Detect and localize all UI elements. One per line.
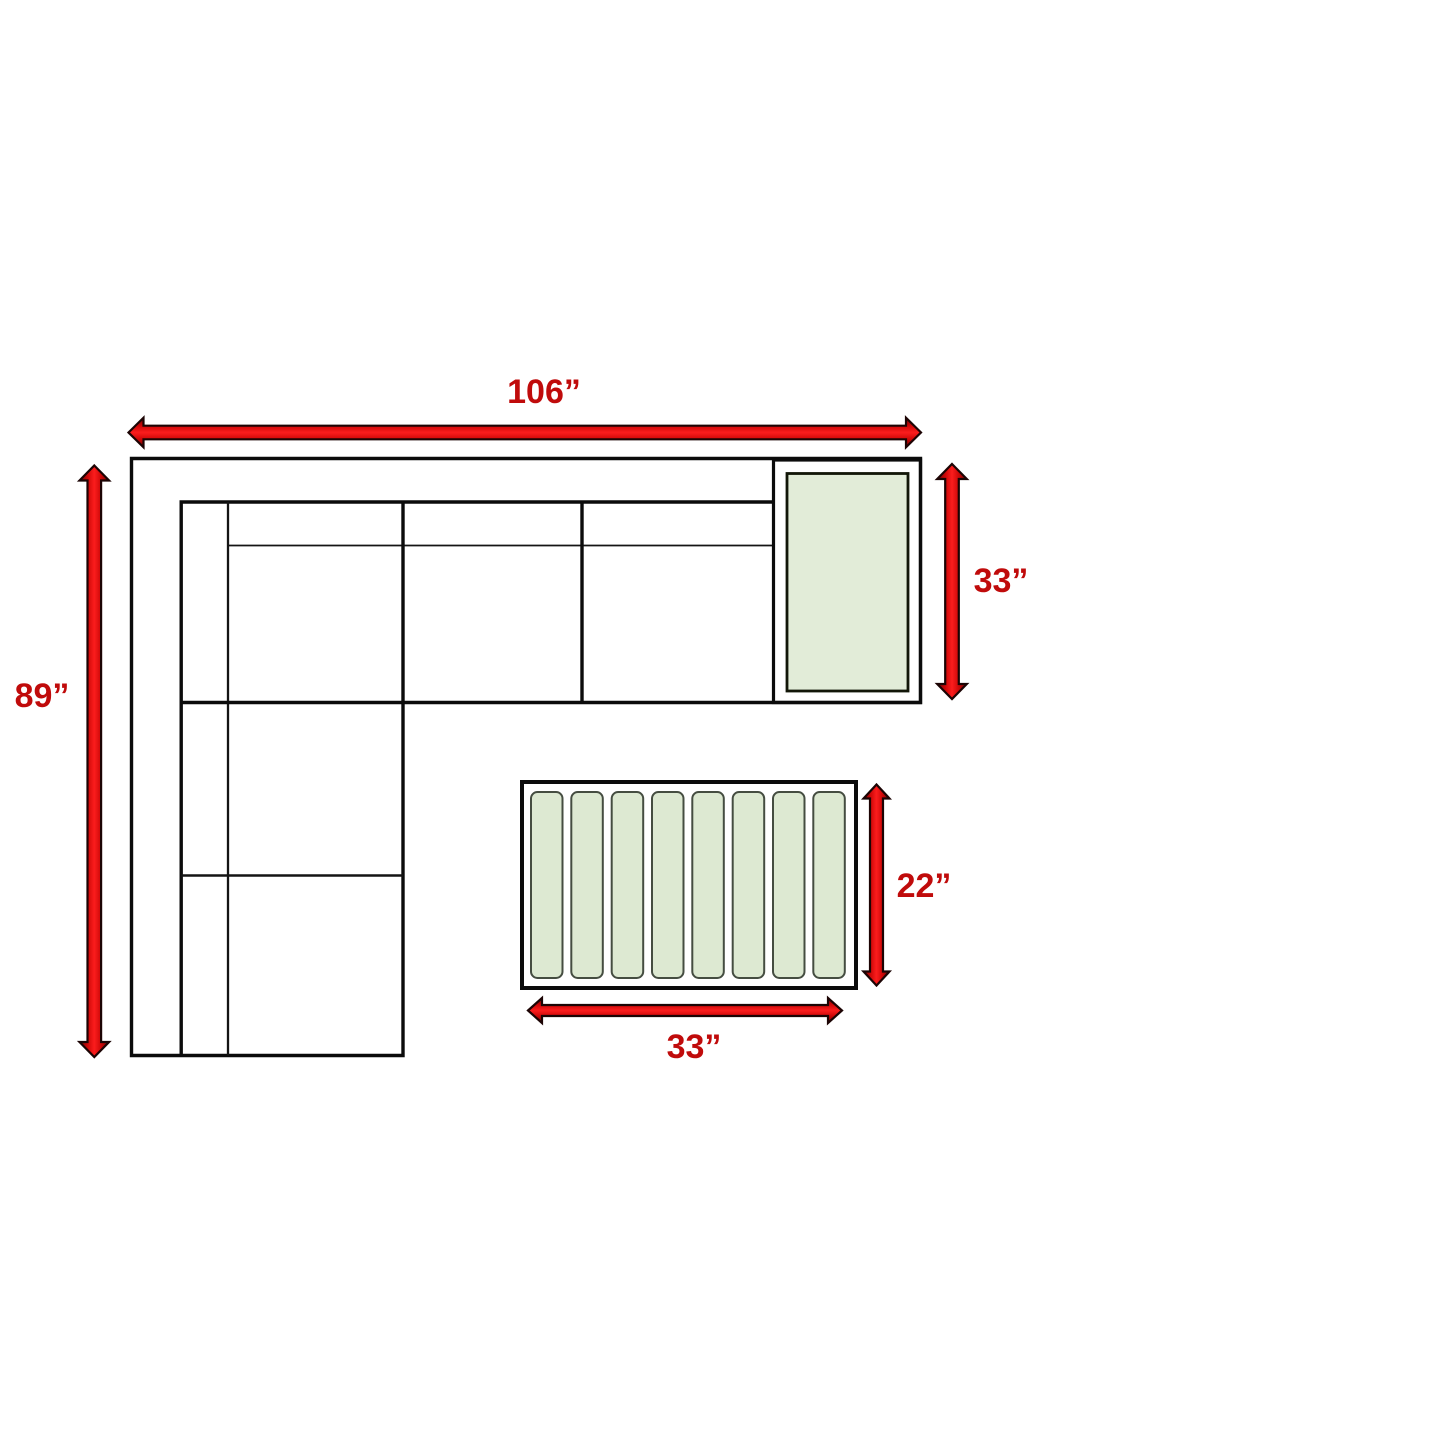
svg-text:22”: 22” xyxy=(897,867,952,905)
svg-text:89”: 89” xyxy=(15,677,70,715)
svg-text:33”: 33” xyxy=(667,1028,722,1066)
svg-text:106”: 106” xyxy=(507,373,581,411)
svg-text:33”: 33” xyxy=(974,562,1029,600)
